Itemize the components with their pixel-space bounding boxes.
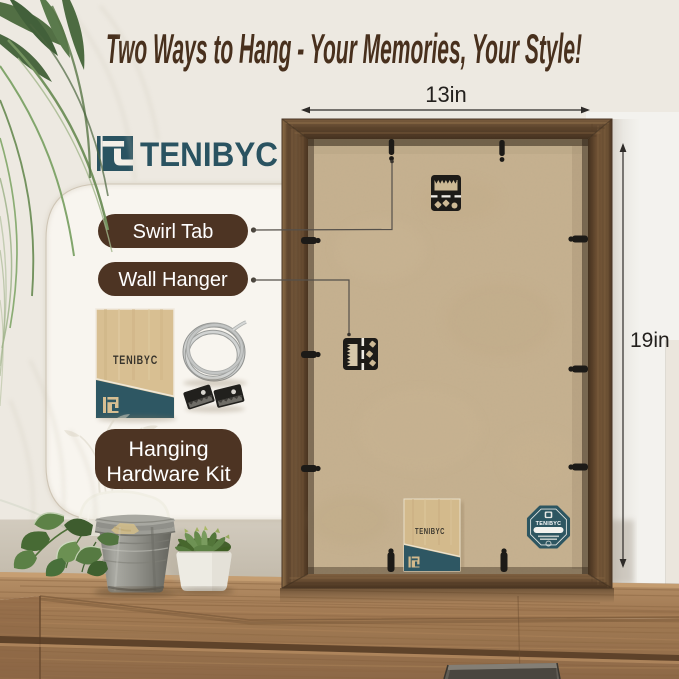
svg-text:Hanging: Hanging [128, 437, 208, 461]
svg-text:13in: 13in [425, 82, 467, 107]
svg-text:Two Ways to Hang - Your Memori: Two Ways to Hang - Your Memories, Your S… [106, 25, 582, 72]
svg-text:TENIBYC: TENIBYC [140, 136, 278, 174]
svg-text:TENIBYC: TENIBYC [415, 526, 445, 536]
svg-text:TENIBYC: TENIBYC [113, 355, 158, 367]
svg-text:TENIBYC: TENIBYC [536, 521, 562, 527]
svg-text:Swirl Tab: Swirl Tab [133, 221, 214, 243]
svg-text:Hardware Kit: Hardware Kit [106, 462, 230, 486]
svg-text:19in: 19in [630, 329, 670, 352]
svg-text:Wall Hanger: Wall Hanger [118, 269, 228, 291]
